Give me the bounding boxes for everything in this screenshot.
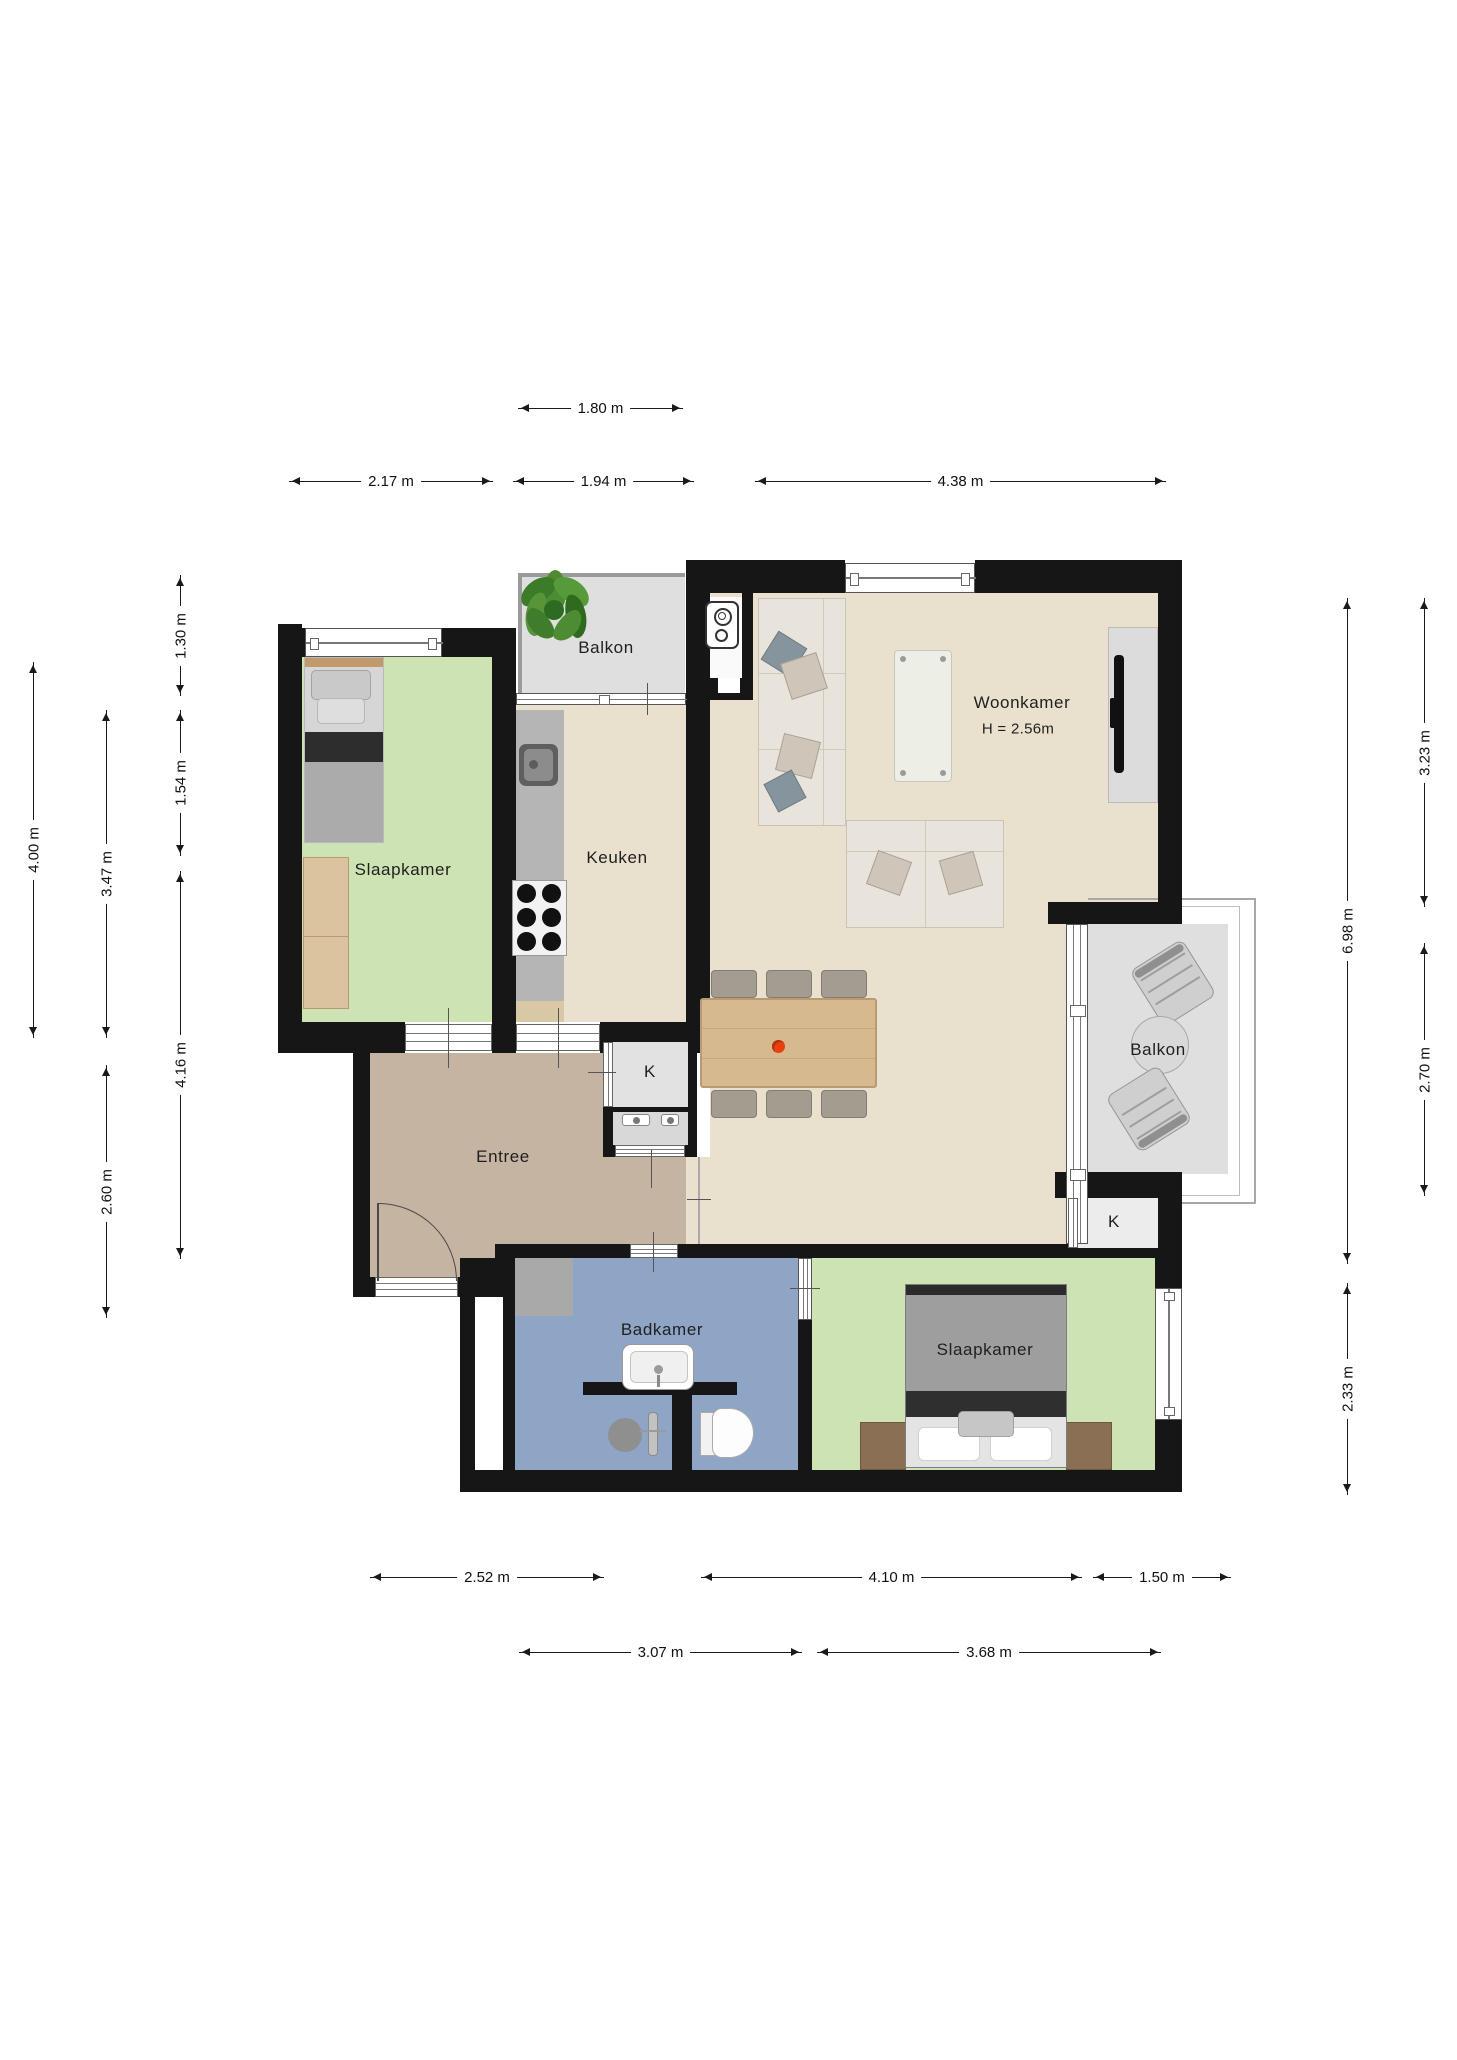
dim-line-left-347: 3.47 m [106,710,107,1038]
dim-line-right-323: 3.23 m [1424,598,1425,907]
dim-line-left-416: 4.16 m [180,871,181,1259]
sofa [758,598,846,826]
room-label-bedroom1: Slaapkamer [355,860,452,880]
shower-fixture [648,1412,658,1456]
washstand-fixture [622,1114,650,1126]
door-opening [798,1258,812,1320]
dim-line-bottom-368: 3.68 m [817,1652,1161,1653]
room-label-balcony-right: Balkon [1130,1040,1186,1060]
dim-line-bottom-410: 4.10 m [701,1577,1082,1578]
threshold [698,1157,700,1244]
wall [460,1258,515,1295]
front-door-leaf [377,1203,379,1281]
dim-line-top-194: 1.94 m [513,481,694,482]
room-label-bathroom: Badkamer [621,1320,703,1340]
dining-chair [821,970,867,998]
dining-table [700,998,877,1088]
dim-line-bottom-307: 3.07 m [519,1652,802,1653]
wall [278,1022,405,1053]
wall [353,1277,375,1297]
single-bed [304,657,384,843]
dim-line-right-270: 2.70 m [1424,943,1425,1196]
dim-line-top-438: 4.38 m [755,481,1166,482]
door-tick [651,1150,652,1188]
wall [460,1295,475,1490]
dim-line-left-400: 4.00 m [33,662,34,1038]
window [1155,1288,1182,1420]
window [845,563,975,593]
door-tick [448,1008,449,1068]
boiler-niche [718,678,740,693]
dim-line-right-233: 2.33 m [1347,1283,1348,1495]
sliding-door [1068,1198,1078,1248]
room-label-entry: Entree [476,1147,530,1167]
wall [1158,593,1182,902]
room-label-living-height: H = 2.56m [982,721,1054,738]
wall [492,628,516,1022]
desk [303,857,349,1009]
room-label-balcony-top: Balkon [578,638,634,658]
dim-line-left-154: 1.54 m [180,710,181,856]
dim-line-bottom-150: 1.50 m [1093,1577,1231,1578]
dining-chair [821,1090,867,1118]
room-label-closet-right: K [1108,1212,1120,1232]
wall [1155,1420,1182,1470]
washbasin [622,1344,694,1390]
storage-strip-floor [475,1295,503,1470]
door-sill [615,1145,685,1157]
wall [460,1470,1182,1492]
sliding-door [603,1042,613,1107]
bathroom-partition [672,1395,692,1470]
double-bed [905,1284,1067,1468]
dim-line-left-130: 1.30 m [180,575,181,696]
wall [278,628,305,657]
window [516,693,686,705]
wall [278,624,302,1052]
room-label-bedroom2: Slaapkamer [937,1340,1034,1360]
nightstand [1066,1422,1112,1470]
washing-machine [515,1258,573,1316]
dim-line-top-217: 2.17 m [289,481,493,482]
stove [512,880,567,956]
wall [975,560,1182,593]
wall [798,1320,812,1470]
coffee-table [894,650,952,782]
wall [492,1022,516,1053]
wall [678,1244,1068,1258]
boiler-unit [705,601,739,649]
dim-line-left-260: 2.60 m [106,1065,107,1318]
shower-drain [608,1418,642,1452]
door-tick [647,683,648,715]
door-sill [630,1244,678,1258]
washstand-fixture [661,1114,679,1126]
sliding-glass-door [1066,924,1088,1244]
window [305,628,442,657]
room-label-living: Woonkamer [974,693,1071,713]
wall [686,560,845,593]
kitchen-sink [519,744,558,786]
door-tick [687,1199,711,1200]
wall [1048,902,1182,924]
dining-chair [711,1090,757,1118]
door-tick [558,1008,559,1068]
dim-line-top-180: 1.80 m [518,408,683,409]
floorplan-page: Slaapkamer Keuken Woonkamer H = 2.56m Ba… [0,0,1457,2060]
wall [1068,1248,1182,1258]
flower-decoration [772,1040,785,1053]
tv-stand [1110,698,1116,728]
dim-line-bottom-252: 2.52 m [370,1577,604,1578]
dining-chair [711,970,757,998]
wall [1158,1198,1182,1248]
wall [507,1244,630,1258]
kitchen-counter-end [516,1001,564,1022]
door-tick [588,1072,616,1073]
nightstand [860,1422,906,1470]
door-tick [653,1232,654,1272]
wall [353,1053,370,1297]
door-tick [790,1288,820,1289]
dining-chair [766,1090,812,1118]
dim-line-right-698: 6.98 m [1347,598,1348,1264]
wall [503,1295,515,1470]
dining-chair [766,970,812,998]
shower-fixture-arm [640,1430,666,1432]
room-label-kitchen: Keuken [586,848,647,868]
loveseat-sofa [846,820,1004,928]
room-label-closet-left: K [644,1062,656,1082]
